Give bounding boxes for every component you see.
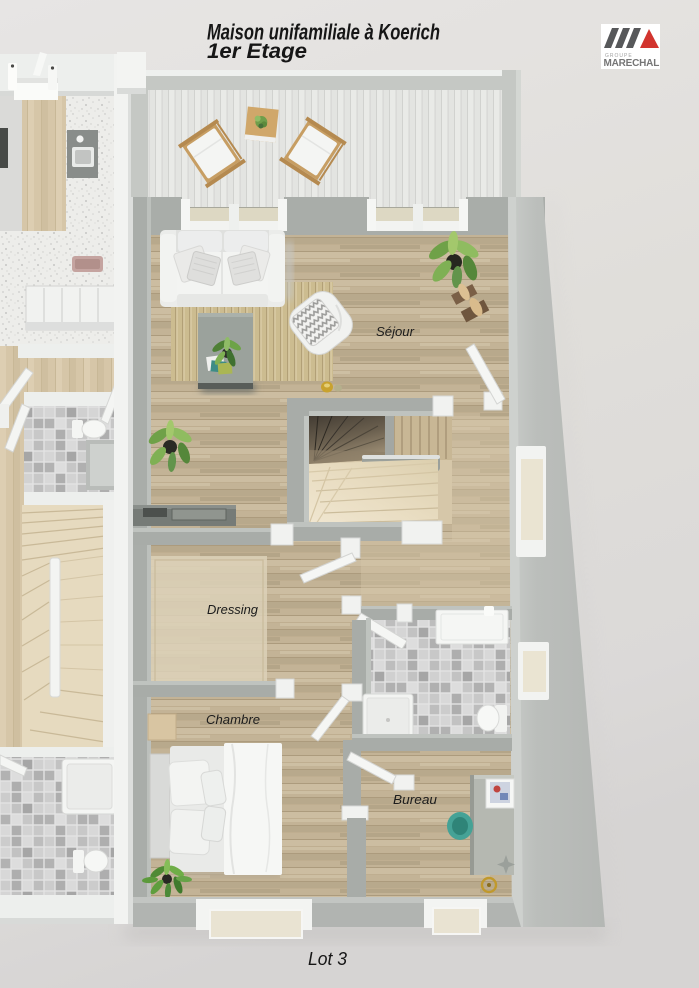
- svg-text:1er Etage: 1er Etage: [207, 40, 307, 63]
- svg-text:Chambre: Chambre: [206, 712, 260, 727]
- svg-text:MARECHAL: MARECHAL: [604, 58, 660, 69]
- svg-text:Lot 3: Lot 3: [308, 948, 348, 969]
- svg-text:Bureau: Bureau: [393, 792, 437, 807]
- svg-text:Dressing: Dressing: [207, 602, 259, 617]
- svg-text:Séjour: Séjour: [376, 324, 415, 339]
